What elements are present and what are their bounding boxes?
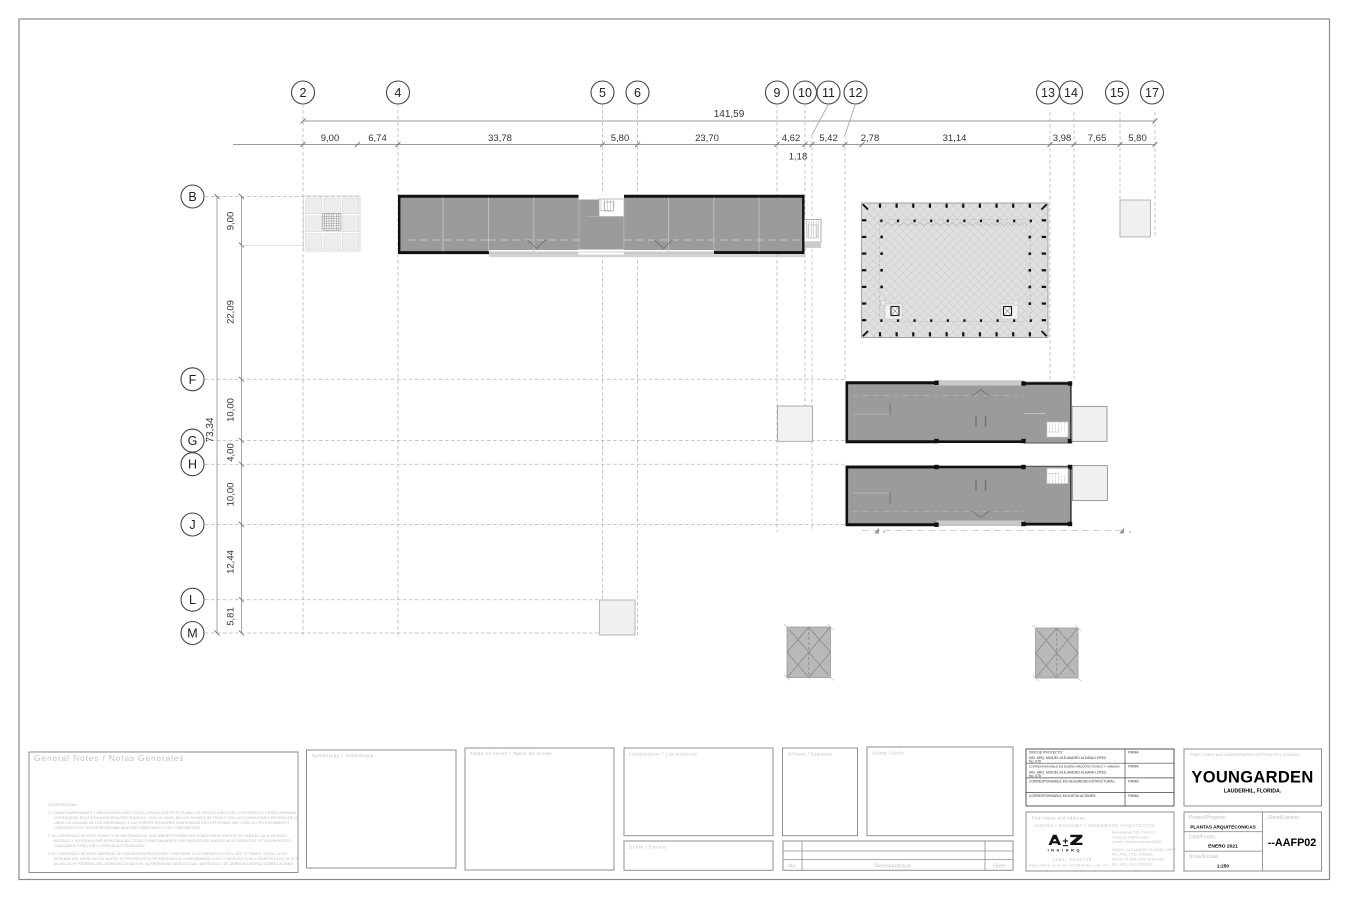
- svg-text:LAUDERHIL, FLORIDA.: LAUDERHIL, FLORIDA.: [1224, 789, 1282, 795]
- svg-text:FIRMA:: FIRMA:: [1128, 794, 1140, 798]
- svg-text:Scale / Escala: Scale / Escala: [629, 845, 666, 851]
- svg-text:ALDANA + SANCHEZ + INGENIE: ALDANA + SANCHEZ + INGENIEROS ARQUITECTO…: [1034, 823, 1156, 828]
- svg-text:(993) 3242729: (993) 3242729: [1053, 857, 1092, 862]
- svg-text:10,00: 10,00: [226, 483, 237, 507]
- svg-text:7,65: 7,65: [1088, 133, 1107, 144]
- svg-text:No. 678: No. 678: [1029, 774, 1041, 778]
- svg-text:2: 2: [300, 86, 307, 100]
- svg-text:INGIARQ: INGIARQ: [1048, 848, 1082, 852]
- svg-text:73,34: 73,34: [205, 417, 216, 442]
- svg-text:B: B: [188, 190, 196, 204]
- svg-text:17: 17: [1145, 86, 1159, 100]
- svg-text:No.: No.: [788, 864, 797, 870]
- svg-text:1:250: 1:250: [1217, 863, 1229, 868]
- svg-text:F: F: [189, 373, 197, 387]
- svg-text:Date/Fecha: Date/Fecha: [1189, 835, 1215, 841]
- svg-text:33,78: 33,78: [488, 133, 512, 144]
- svg-text:DRO DE PROYECTO:: DRO DE PROYECTO:: [1029, 751, 1063, 755]
- svg-text:5,81: 5,81: [226, 607, 237, 626]
- svg-text:NO. ARQ. CED. 3439814: NO. ARQ. CED. 3439814: [1112, 853, 1153, 857]
- svg-text:Table of Areas / Tabla de: Table of Areas / Tabla de Areas: [470, 751, 552, 757]
- svg-text:15: 15: [1110, 86, 1124, 100]
- svg-text:4,00: 4,00: [226, 443, 237, 462]
- svg-text:Revision/Issue: Revision/Issue: [875, 864, 911, 870]
- svg-text:PLANTAS ARQUITECONICAS: PLANTAS ARQUITECONICAS: [1190, 825, 1256, 830]
- svg-text:2,78: 2,78: [861, 133, 880, 144]
- svg-text:4: 4: [395, 86, 402, 100]
- svg-text:A: A: [1129, 529, 1132, 534]
- svg-text:CORRESPONSABLE EN INSTALACIONE: CORRESPONSABLE EN INSTALACIONES:: [1029, 794, 1096, 798]
- svg-text:EDITADO Y NO PODRA SER REPRODU: EDITADO Y NO PODRA SER REPRODUCIDO TOTAL…: [54, 839, 292, 843]
- svg-text:Scale/Escala: Scale/Escala: [1189, 854, 1218, 860]
- svg-text:11: 11: [822, 86, 835, 100]
- svg-text:80 DE LA LEY FEDERAL DEL DERE: 80 DE LA LEY FEDERAL DEL DERECHO DE AUTO…: [54, 862, 294, 866]
- svg-text:FIRMA:: FIRMA:: [1128, 779, 1140, 783]
- svg-text:10: 10: [798, 86, 812, 100]
- svg-text:Project/Proyecto: Project/Proyecto: [1189, 815, 1226, 821]
- svg-text:Centro, Tabasco Mexico 86035: Centro, Tabasco Mexico 86035: [1112, 840, 1161, 844]
- svg-text:Project Name and Address/No: Project Name and Address/Nombre del Proy…: [1190, 752, 1300, 757]
- svg-text:ENERO 2021: ENERO 2021: [1208, 844, 1238, 850]
- svg-text:OBRA, LA CALIDAD DE LOS MATERI: OBRA, LA CALIDAD DE LOS MATERIALES Y LAS…: [54, 821, 289, 825]
- svg-text:141,59: 141,59: [714, 109, 745, 120]
- svg-text:Localization / Localizacion: Localization / Localizacion: [629, 752, 698, 758]
- svg-text:Samarkanda 708, Casa 13: Samarkanda 708, Casa 13: [1112, 831, 1155, 835]
- svg-text:Symbology / Simbologia: Symbology / Simbologia: [312, 753, 374, 759]
- svg-text:G: G: [188, 434, 198, 448]
- svg-text:YOUNGARDEN: YOUNGARDEN: [1191, 769, 1313, 787]
- svg-text:J: J: [189, 518, 195, 532]
- svg-text:MIGUEL ALEJANDRO ALDANA LOPEZ: MIGUEL ALEJANDRO ALDANA LOPEZ: [1112, 848, 1177, 852]
- svg-text:CONSTRUCTIVO, SON RESPONSABILI: CONSTRUCTIVO, SON RESPONSABILIDAD DEL FA…: [54, 826, 201, 830]
- svg-text:CORRESPONSABLE EN DISEÑO ARQUI: CORRESPONSABLE EN DISEÑO ARQUITECTONICO …: [1029, 764, 1121, 769]
- svg-text:VERIFICARSE EN LOS PLANOS ARQU: VERIFICARSE EN LOS PLANOS ARQUITECTONICO…: [54, 816, 299, 820]
- svg-text:L: L: [189, 593, 196, 607]
- svg-text:Oropeza, Villahermosa: Oropeza, Villahermosa: [1112, 835, 1149, 839]
- svg-text:4,62: 4,62: [782, 133, 801, 144]
- svg-text:22,09: 22,09: [226, 300, 237, 324]
- svg-text:General Notes / Notas Gene: General Notes / Notas Generales: [34, 753, 184, 763]
- svg-text:CUALQUIER OTRO, SIN LA PREVIA: CUALQUIER OTRO, SIN LA PREVIA AUTORIZACI…: [54, 844, 145, 848]
- svg-text:3. EL CONTENIDO DE ESTE MATE: 3. EL CONTENIDO DE ESTE MATERIAL SE ENCU…: [48, 852, 288, 856]
- svg-text:ADVERTENCIAS:: ADVERTENCIAS:: [48, 803, 78, 807]
- svg-text:Firm Name and Address: Firm Name and Address: [1032, 816, 1085, 821]
- svg-text:31,14: 31,14: [943, 133, 967, 144]
- svg-text:13: 13: [1041, 86, 1055, 100]
- svg-text:9: 9: [774, 86, 781, 100]
- svg-text:5,42: 5,42: [819, 133, 838, 144]
- svg-text:Date: Date: [993, 864, 1005, 870]
- svg-text:PATRICIA SANCHEZ SANCHEZ: PATRICIA SANCHEZ SANCHEZ: [1112, 857, 1165, 861]
- svg-text:H: H: [188, 458, 197, 472]
- svg-text:9,00: 9,00: [226, 212, 237, 231]
- svg-text:10,00: 10,00: [226, 398, 237, 422]
- svg-text:FIRMA:: FIRMA:: [1128, 751, 1140, 755]
- svg-text:www.adise.com.mx.info@adise.co: www.adise.com.mx.info@adise.com.mx: [1029, 862, 1110, 867]
- svg-text:12,44: 12,44: [226, 550, 237, 574]
- svg-text:9,00: 9,00: [321, 133, 340, 144]
- svg-text:6,74: 6,74: [368, 133, 387, 144]
- svg-text:M: M: [187, 627, 197, 641]
- svg-text:23,70: 23,70: [695, 133, 719, 144]
- svg-text:2. EL CONTENIDO DE ESTE PLAN: 2. EL CONTENIDO DE ESTE PLANO Y SU INFOR…: [48, 834, 286, 838]
- svg-text:FEDERAL DEL DERECHO DE AUTOR,: FEDERAL DEL DERECHO DE AUTOR, EL PROYECT…: [54, 857, 298, 861]
- svg-text:5,80: 5,80: [1128, 133, 1147, 144]
- svg-text:Sheet/Lamina: Sheet/Lamina: [1268, 815, 1299, 821]
- svg-text:6: 6: [634, 86, 641, 100]
- svg-text:Stamp / Sello: Stamp / Sello: [872, 751, 904, 756]
- svg-text:NO. ARQ. CED. 3740413: NO. ARQ. CED. 3740413: [1112, 862, 1153, 866]
- svg-text:3,98: 3,98: [1053, 133, 1072, 144]
- svg-text:1,18: 1,18: [789, 152, 808, 163]
- svg-text:12: 12: [849, 86, 863, 100]
- svg-text:FIRMA:: FIRMA:: [1128, 765, 1140, 769]
- svg-text:CORRESPONSABLE EN SEGURIDAD ES: CORRESPONSABLE EN SEGURIDAD ESTRUCTURAL:: [1029, 779, 1116, 783]
- svg-text:No. 678: No. 678: [1029, 759, 1041, 763]
- svg-text:5: 5: [599, 86, 606, 100]
- svg-text:1. TOMAR DIMENSIONES Y MEDIC: 1. TOMAR DIMENSIONES Y MEDICIONES DIRECT…: [48, 811, 296, 815]
- svg-text:14: 14: [1064, 86, 1078, 100]
- svg-text:5,80: 5,80: [611, 133, 630, 144]
- svg-text:A: A: [883, 529, 886, 534]
- svg-text:--AAFP02: --AAFP02: [1268, 837, 1317, 849]
- svg-text:Scheme / Esquema: Scheme / Esquema: [788, 752, 833, 757]
